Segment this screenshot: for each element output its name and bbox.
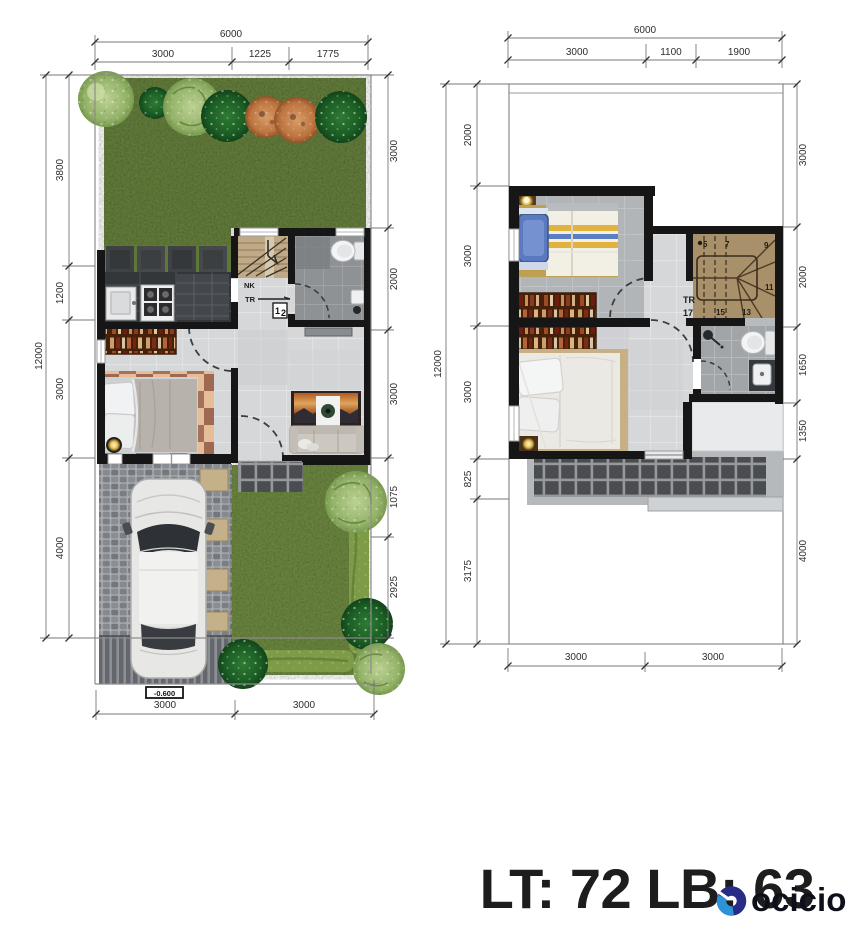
svg-text:3000: 3000 xyxy=(389,382,400,405)
svg-text:1100: 1100 xyxy=(660,47,682,58)
svg-text:-0.600: -0.600 xyxy=(154,689,175,698)
svg-text:5: 5 xyxy=(703,240,708,249)
svg-text:11: 11 xyxy=(765,283,774,292)
svg-text:3000: 3000 xyxy=(565,652,588,663)
svg-text:6000: 6000 xyxy=(220,29,243,40)
svg-text:3000: 3000 xyxy=(152,49,175,60)
svg-text:3000: 3000 xyxy=(55,377,66,400)
svg-text:1775: 1775 xyxy=(317,49,340,60)
svg-text:3000: 3000 xyxy=(702,652,725,663)
svg-text:1200: 1200 xyxy=(55,281,66,304)
svg-text:2000: 2000 xyxy=(463,123,474,146)
svg-text:2925: 2925 xyxy=(389,575,400,598)
svg-text:4000: 4000 xyxy=(798,539,809,562)
svg-text:12000: 12000 xyxy=(433,350,444,378)
svg-text:1650: 1650 xyxy=(798,353,809,376)
svg-text:3000: 3000 xyxy=(566,47,589,58)
svg-text:13: 13 xyxy=(742,308,751,317)
svg-text:TR: TR xyxy=(683,295,695,305)
svg-text:6000: 6000 xyxy=(634,25,657,36)
svg-text:1350: 1350 xyxy=(798,419,809,442)
svg-text:3000: 3000 xyxy=(798,143,809,166)
svg-text:1: 1 xyxy=(275,306,280,316)
svg-text:NK: NK xyxy=(244,281,255,290)
svg-text:3000: 3000 xyxy=(389,139,400,162)
svg-text:2: 2 xyxy=(281,308,286,318)
svg-text:ocicio: ocicio xyxy=(751,881,846,918)
svg-text:12000: 12000 xyxy=(34,342,45,370)
svg-text:1900: 1900 xyxy=(728,47,751,58)
svg-text:9: 9 xyxy=(764,241,769,250)
svg-text:4000: 4000 xyxy=(55,536,66,559)
svg-text:17: 17 xyxy=(683,308,693,318)
svg-text:3800: 3800 xyxy=(55,158,66,181)
svg-text:3175: 3175 xyxy=(463,559,474,582)
svg-text:2000: 2000 xyxy=(798,265,809,288)
svg-text:1225: 1225 xyxy=(249,49,272,60)
svg-text:15: 15 xyxy=(716,308,725,317)
svg-text:7: 7 xyxy=(725,240,730,249)
svg-text:3000: 3000 xyxy=(293,700,316,711)
svg-text:3000: 3000 xyxy=(463,244,474,267)
svg-text:3000: 3000 xyxy=(463,380,474,403)
svg-text:825: 825 xyxy=(463,470,474,487)
svg-text:3000: 3000 xyxy=(154,700,177,711)
svg-text:TR: TR xyxy=(245,295,256,304)
svg-text:1075: 1075 xyxy=(389,485,400,508)
svg-text:2000: 2000 xyxy=(389,267,400,290)
